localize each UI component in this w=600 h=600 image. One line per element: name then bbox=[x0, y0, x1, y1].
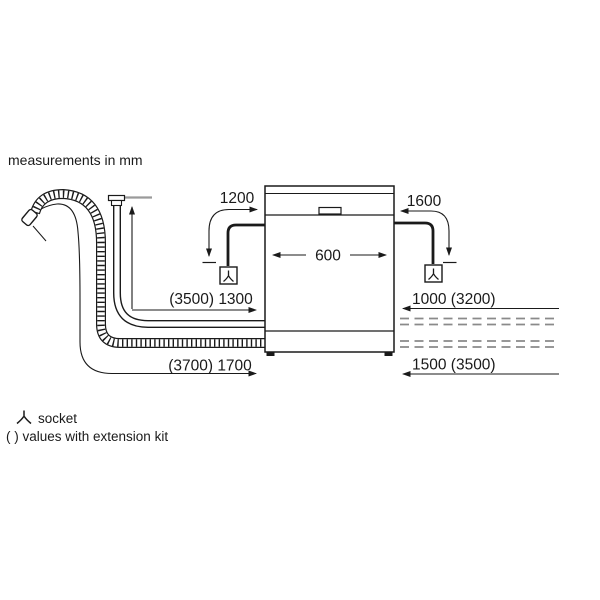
foot-right bbox=[385, 352, 393, 357]
supply-left-label: (3500) 1300 bbox=[169, 291, 253, 308]
width-label: 600 bbox=[315, 248, 341, 265]
legend: socket ( ) values with extension kit bbox=[6, 411, 168, 445]
socket-icon-left bbox=[220, 267, 237, 284]
page-title: measurements in mm bbox=[8, 152, 143, 168]
dishwasher bbox=[265, 186, 394, 356]
power-cord-right bbox=[394, 223, 433, 264]
drain-right-label: 1500 (3500) bbox=[412, 357, 496, 374]
cord-right-dimension-line bbox=[401, 211, 449, 255]
socket-icon-right bbox=[425, 265, 442, 282]
foot-left bbox=[267, 352, 275, 357]
socket-symbol-icon bbox=[17, 411, 31, 424]
drain-left-label: (3700) 1700 bbox=[168, 358, 252, 375]
door-handle bbox=[319, 208, 341, 215]
cord-right-label: 1600 bbox=[407, 193, 442, 210]
legend-extension-label: ( ) values with extension kit bbox=[6, 429, 168, 444]
installation-diagram: measurements in mm 1200 1600 600 (3500) … bbox=[0, 0, 600, 600]
supply-right-label: 1000 (3200) bbox=[412, 291, 496, 308]
diagram-svg: measurements in mm 1200 1600 600 (3500) … bbox=[0, 0, 600, 600]
hose-tip-leader-line bbox=[33, 226, 46, 241]
drain-length-dimension-line bbox=[29, 204, 256, 374]
tap-connector-icon bbox=[109, 196, 125, 201]
power-cord-left bbox=[228, 225, 265, 266]
cord-left-dimension-line bbox=[209, 210, 257, 257]
cord-left-label: 1200 bbox=[220, 190, 255, 207]
extension-hoses-dashed bbox=[400, 319, 559, 348]
legend-socket-label: socket bbox=[38, 411, 77, 426]
